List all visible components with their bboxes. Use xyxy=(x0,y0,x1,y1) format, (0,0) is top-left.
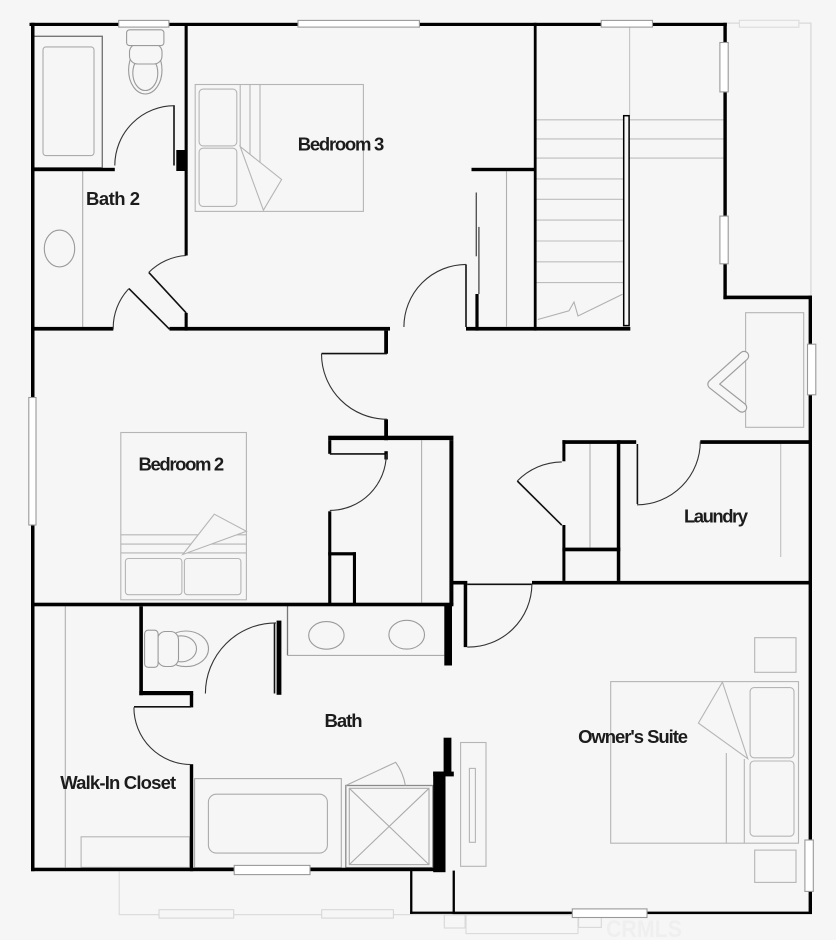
svg-text:Walk-In Closet: Walk-In Closet xyxy=(60,772,176,793)
svg-text:Bath: Bath xyxy=(325,710,363,731)
svg-text:Bedroom 3: Bedroom 3 xyxy=(298,134,385,155)
svg-text:Owner's Suite: Owner's Suite xyxy=(578,726,688,747)
svg-text:Bedroom 2: Bedroom 2 xyxy=(139,453,225,474)
svg-text:Bath 2: Bath 2 xyxy=(86,188,140,209)
svg-text:CRMLS: CRMLS xyxy=(606,916,682,940)
svg-text:Laundry: Laundry xyxy=(684,506,749,527)
